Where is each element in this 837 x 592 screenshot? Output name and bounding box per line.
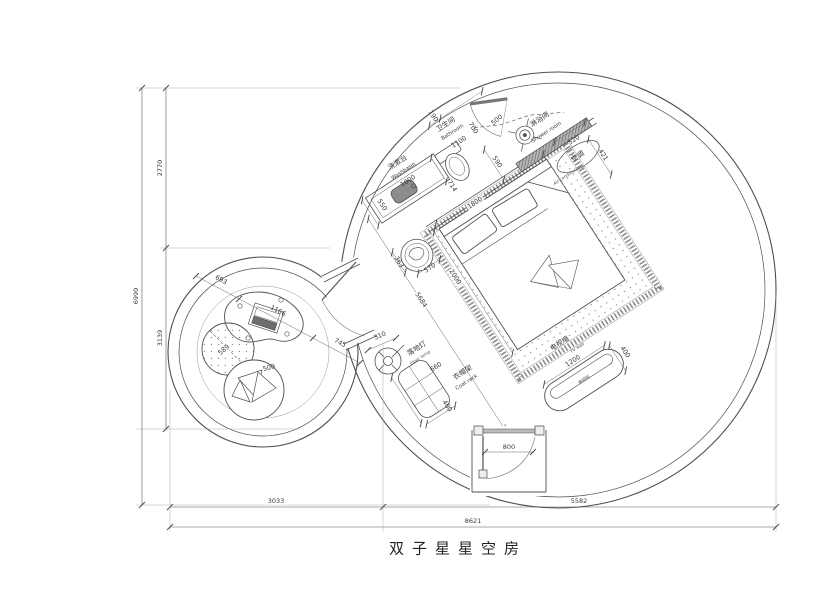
drawing-title: 双子星星空房 [389,542,527,557]
floor-plan: 6990 2770 3139 3033 5582 8621 800 洗漱台 Wa… [0,0,837,592]
door-post [535,426,544,435]
threshold [483,429,535,433]
shower-door [468,85,523,142]
dim-total-height: 6990 [133,287,140,306]
entry-vestibule [470,426,548,496]
dim-height-bottom: 3139 [157,329,164,348]
floor-lamp [368,338,404,374]
dim-bottom-left: 3033 [267,498,286,505]
coat-rack [388,353,460,431]
dim-entry-door: 800 [502,444,516,451]
dim-bottom-total: 8621 [464,518,483,525]
dim-height-top: 2770 [157,159,164,178]
dim-bottom-right: 5582 [570,498,589,505]
bedroom-zone [340,46,711,433]
door-post [474,426,483,435]
